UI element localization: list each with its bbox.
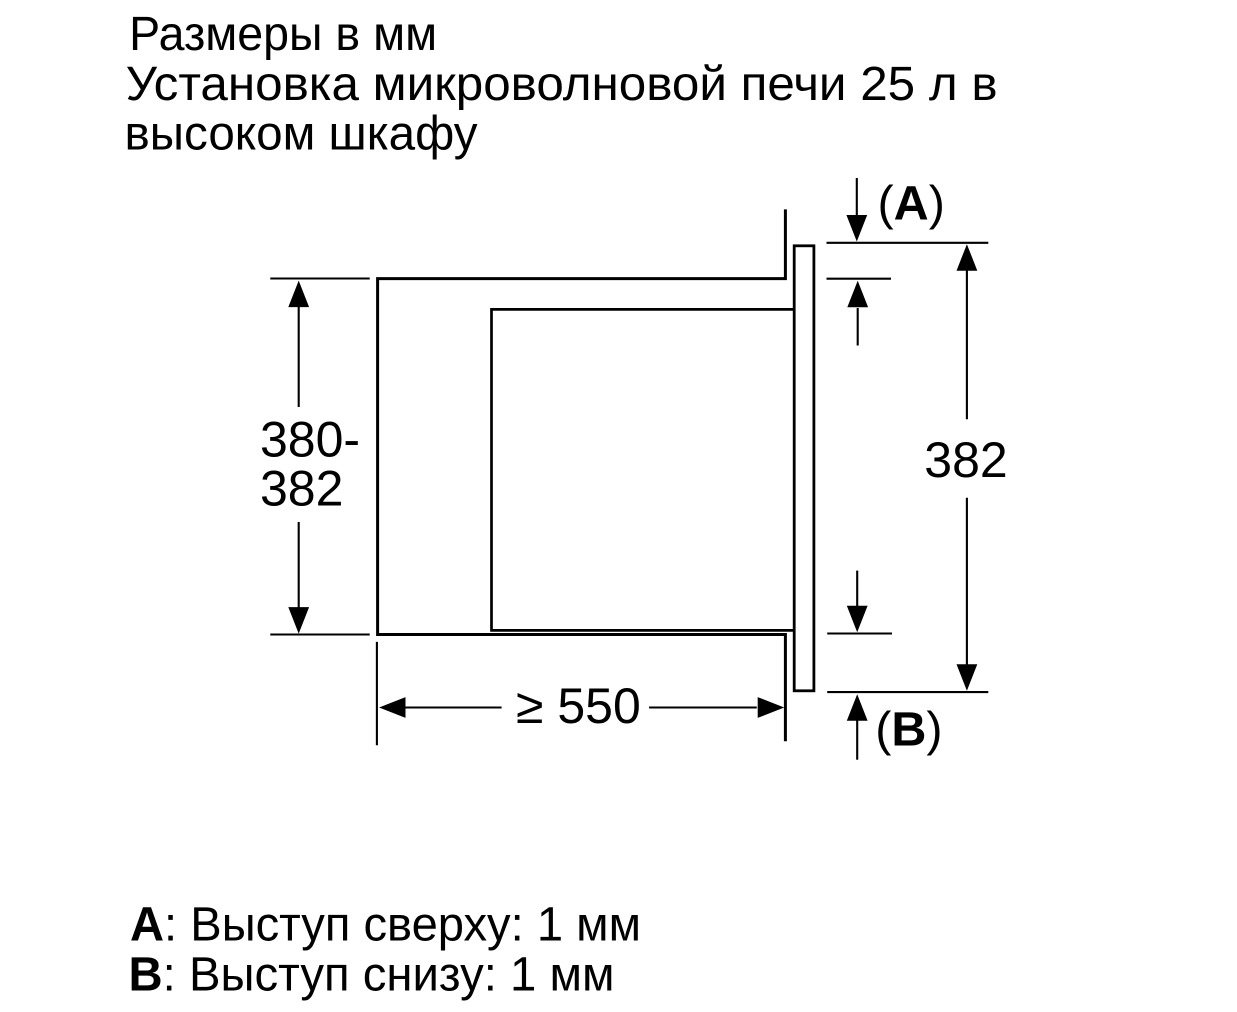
svg-text:высоком шкафу: высоком шкафу <box>125 107 479 161</box>
svg-text:380-: 380- <box>260 412 360 468</box>
svg-text:≥ 550: ≥ 550 <box>516 678 641 734</box>
svg-text:A: Выступ сверху: 1 мм: A: Выступ сверху: 1 мм <box>130 898 641 952</box>
svg-text:382: 382 <box>924 432 1007 488</box>
svg-text:(B): (B) <box>875 703 942 757</box>
svg-text:382: 382 <box>260 461 343 517</box>
svg-text:(A): (A) <box>878 177 945 231</box>
svg-text:B: Выступ снизу: 1 мм: B: Выступ снизу: 1 мм <box>129 948 615 1002</box>
svg-text:Установка микроволновой печи 2: Установка микроволновой печи 25 л в <box>126 57 998 111</box>
svg-text:Размеры в мм: Размеры в мм <box>129 7 437 61</box>
